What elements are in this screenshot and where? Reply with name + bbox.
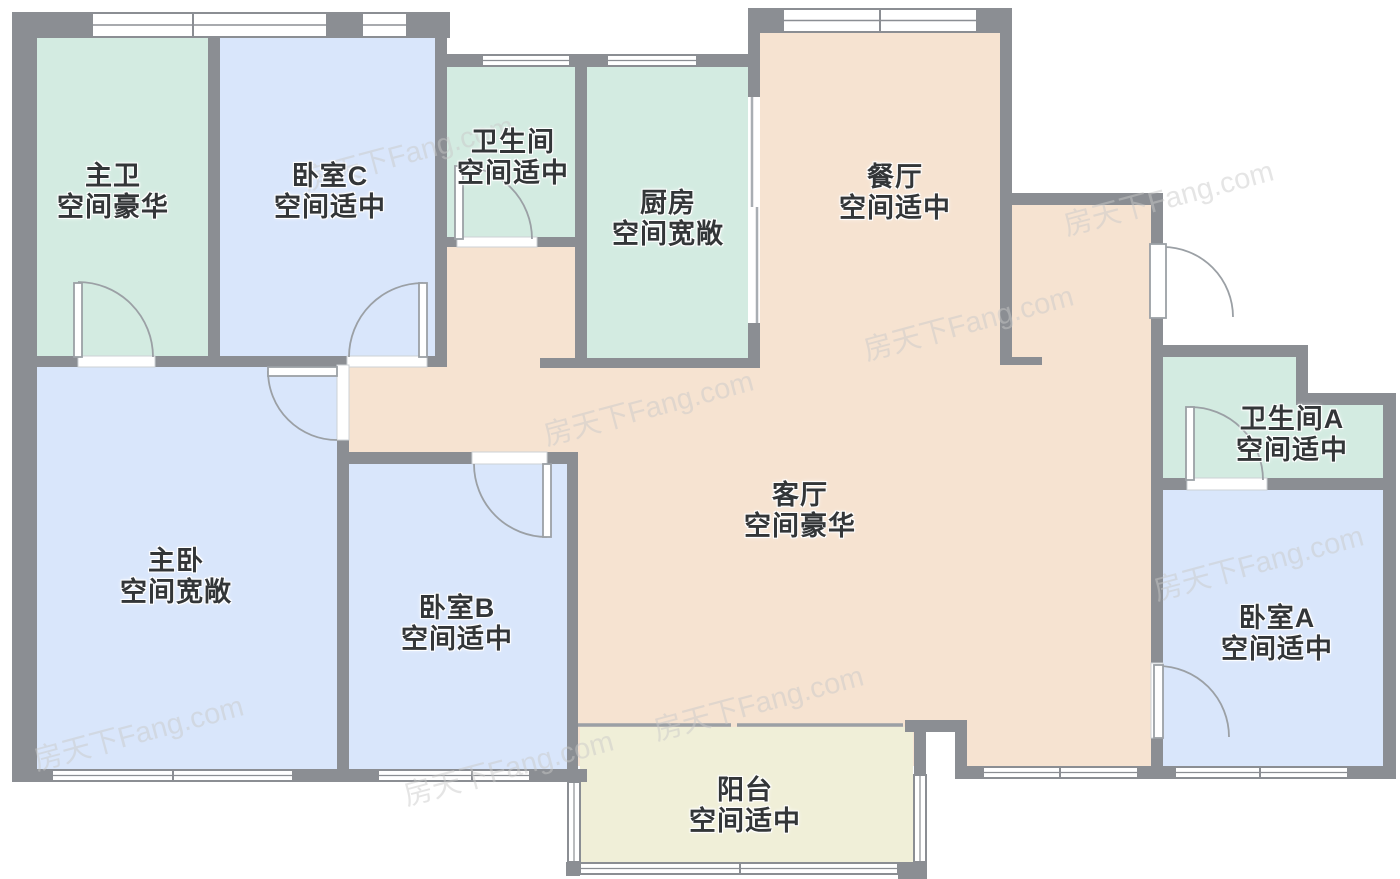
window-bedroom-a bbox=[1175, 767, 1348, 778]
window-bathroom bbox=[482, 55, 570, 66]
room-fill-balcony bbox=[580, 727, 913, 863]
window-top-bedroom-c bbox=[362, 13, 407, 37]
window-balcony-left bbox=[568, 782, 580, 862]
room-fill-master-bath bbox=[37, 38, 208, 358]
window-top-bedrooms bbox=[92, 13, 327, 37]
window-kitchen bbox=[607, 55, 697, 66]
window-bedroom-b bbox=[378, 770, 530, 781]
room-fill-entry-hall bbox=[1012, 205, 1151, 367]
room-fill-bathroom bbox=[447, 67, 575, 239]
window-balcony-bottom bbox=[580, 863, 898, 874]
room-fills bbox=[37, 33, 1383, 863]
room-fill-living bbox=[578, 365, 1151, 766]
floor-plan-drawing bbox=[0, 0, 1400, 879]
room-fill-master-bedroom bbox=[37, 365, 337, 771]
room-fill-bedroom-c bbox=[220, 38, 435, 358]
window-master-bedroom bbox=[52, 770, 293, 781]
window-balcony-right bbox=[914, 775, 926, 862]
room-fill-hallway bbox=[349, 365, 578, 455]
room-fill-bathroom-a-ext bbox=[1296, 405, 1383, 479]
floor-plan: 房天下Fang.com 房天下Fang.com 房天下Fang.com 房天下F… bbox=[0, 0, 1400, 879]
room-fill-dining bbox=[760, 33, 1000, 367]
window-living bbox=[983, 767, 1138, 778]
room-fill-corridor bbox=[447, 247, 575, 367]
room-fill-kitchen bbox=[587, 67, 748, 360]
exterior-notch bbox=[926, 732, 955, 767]
door-entrance bbox=[1150, 244, 1233, 318]
window-dining bbox=[783, 9, 977, 32]
room-fill-bedroom-a bbox=[1163, 490, 1383, 767]
room-fill-bedroom-b bbox=[349, 464, 567, 770]
